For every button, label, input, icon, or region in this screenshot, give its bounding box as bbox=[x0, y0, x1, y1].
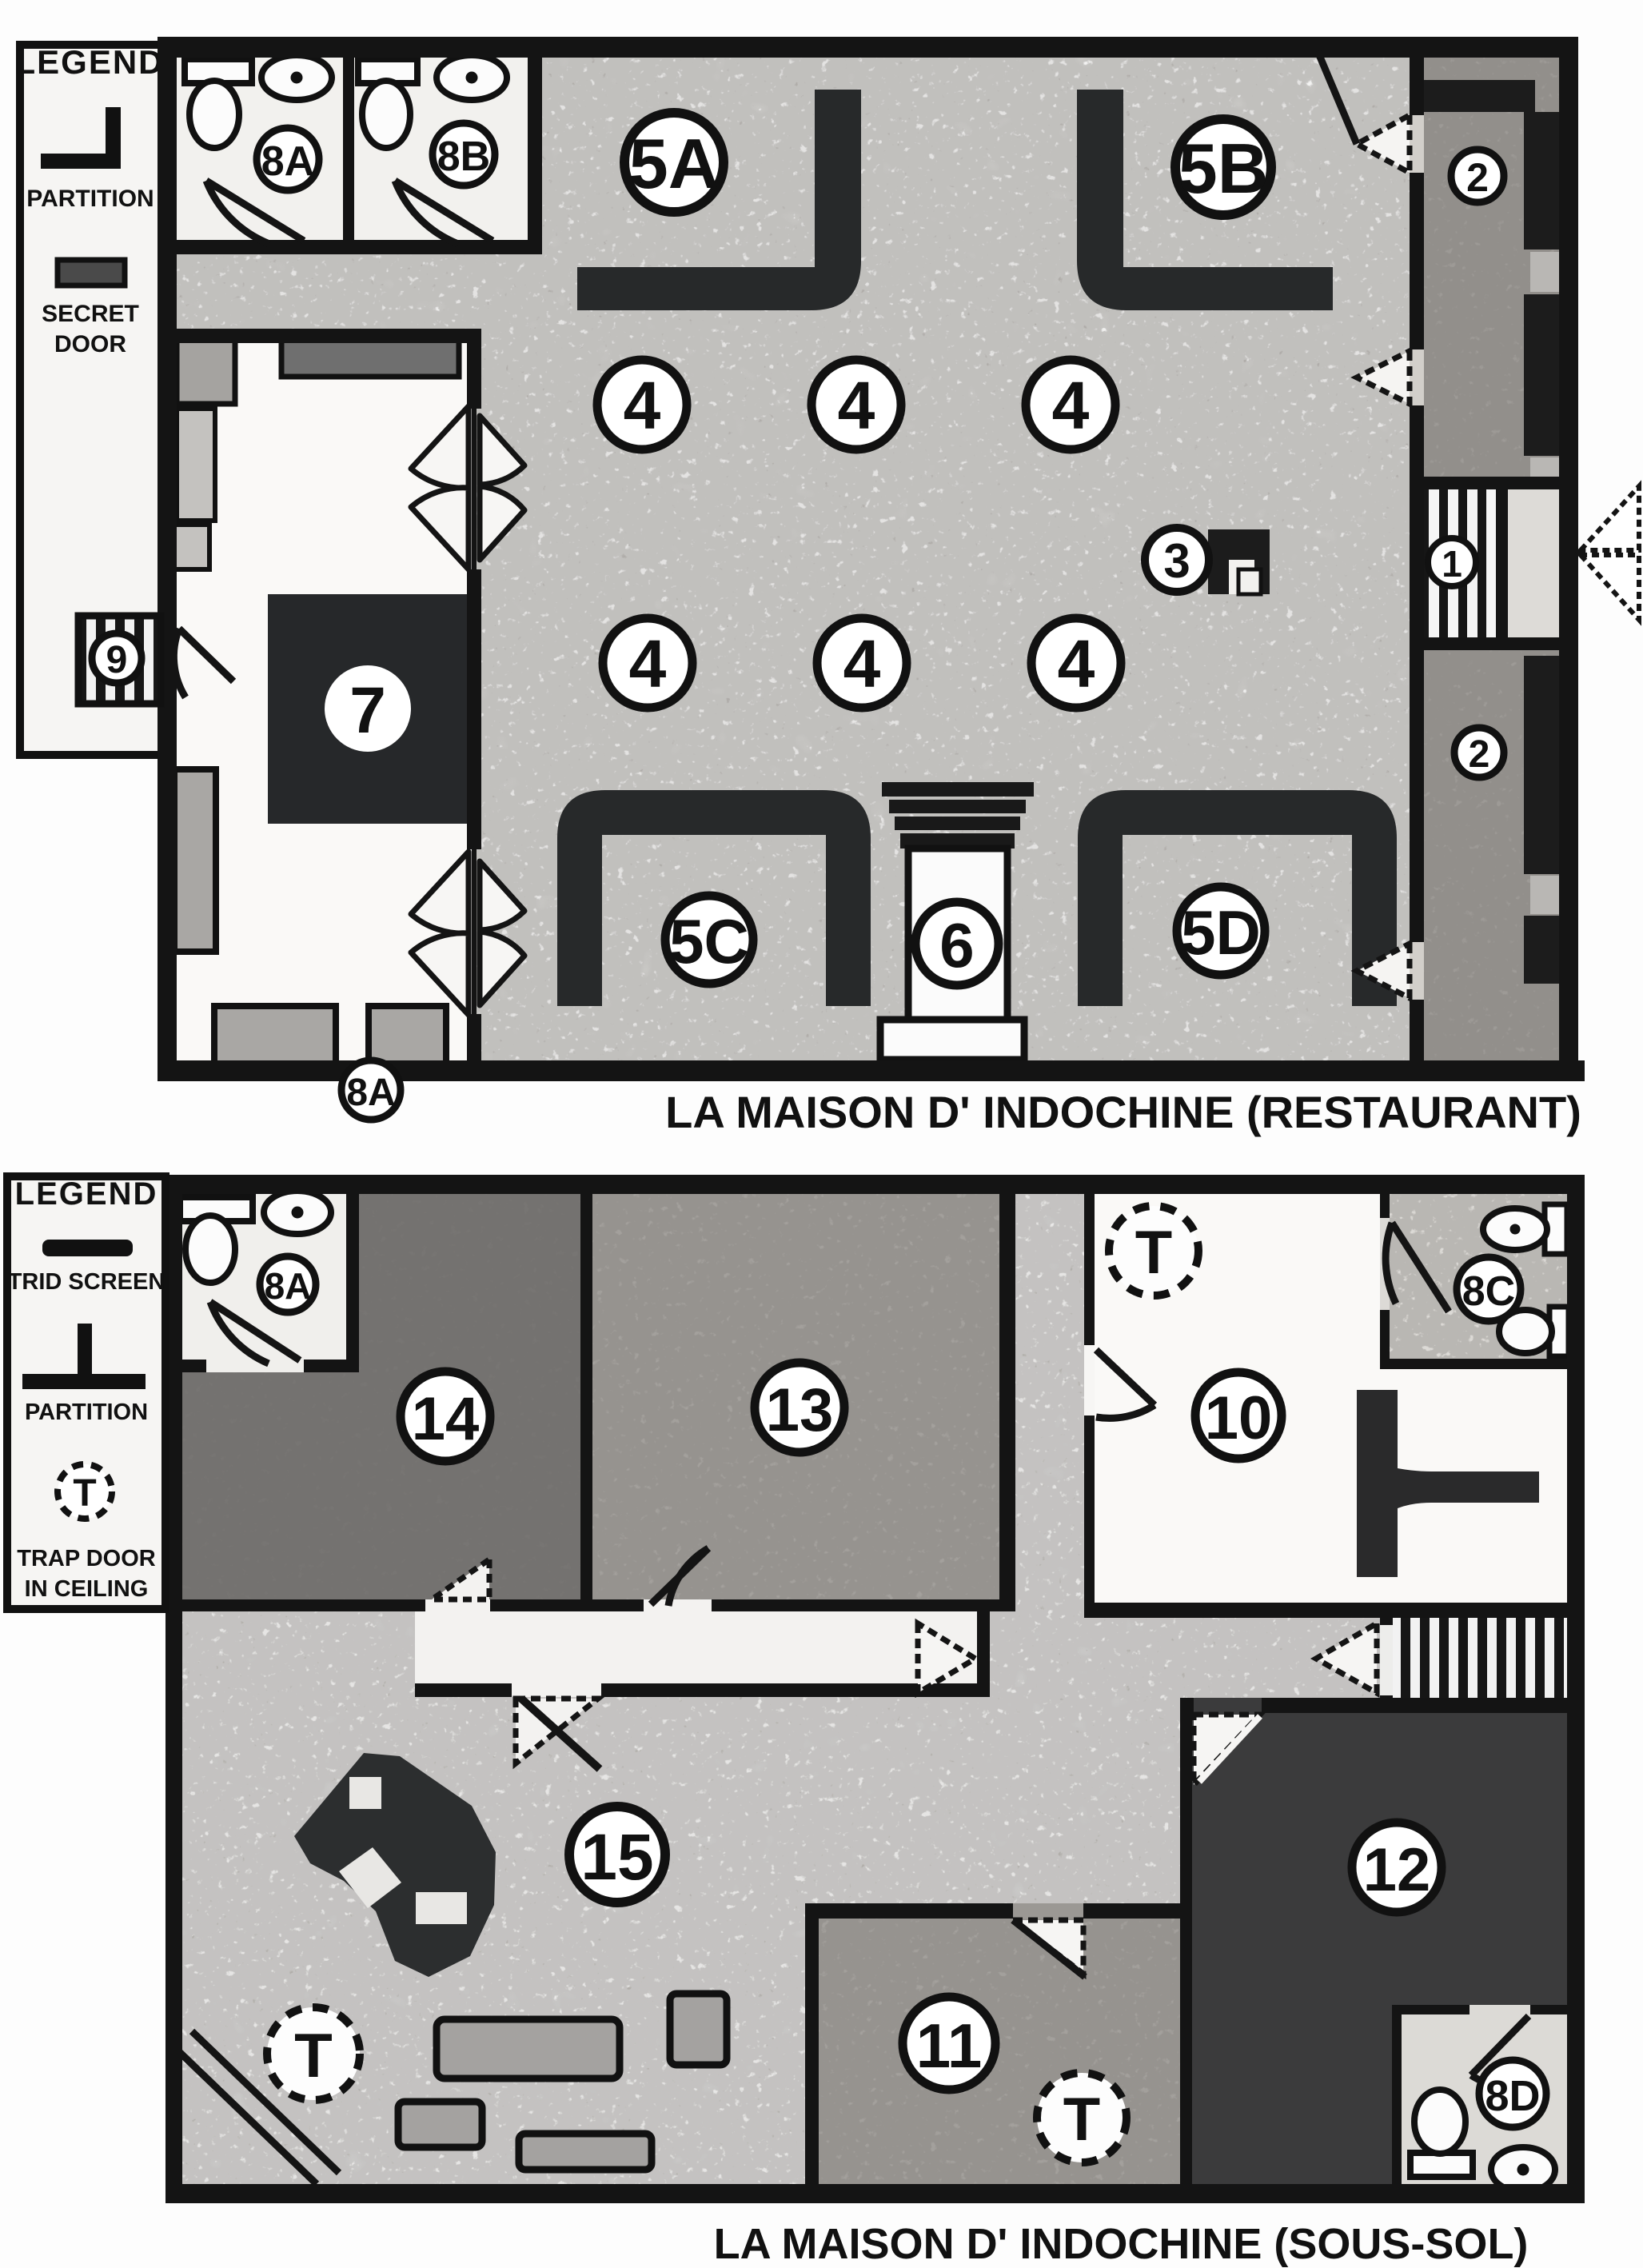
svg-text:7: 7 bbox=[349, 674, 386, 747]
svg-text:SECRET: SECRET bbox=[42, 301, 139, 327]
svg-text:13: 13 bbox=[766, 1376, 834, 1444]
svg-text:8A: 8A bbox=[265, 1265, 312, 1307]
svg-text:5B: 5B bbox=[1178, 129, 1269, 208]
svg-text:12: 12 bbox=[1363, 1836, 1431, 1904]
svg-text:1: 1 bbox=[1442, 543, 1462, 585]
svg-text:5D: 5D bbox=[1181, 897, 1261, 968]
svg-text:9: 9 bbox=[106, 639, 128, 681]
svg-text:PARTITION: PARTITION bbox=[25, 1400, 148, 1425]
svg-text:8A: 8A bbox=[346, 1072, 395, 1114]
svg-text:4: 4 bbox=[838, 368, 875, 443]
svg-text:15: 15 bbox=[580, 1821, 653, 1894]
svg-text:2: 2 bbox=[1469, 733, 1490, 776]
svg-text:6: 6 bbox=[939, 910, 974, 980]
svg-text:DOOR: DOOR bbox=[54, 331, 126, 357]
svg-text:11: 11 bbox=[916, 2010, 982, 2081]
svg-text:5A: 5A bbox=[629, 124, 720, 203]
svg-text:8B: 8B bbox=[437, 134, 490, 180]
svg-text:4: 4 bbox=[843, 626, 881, 701]
svg-text:10: 10 bbox=[1205, 1384, 1273, 1452]
svg-text:8C: 8C bbox=[1462, 1268, 1515, 1315]
svg-text:4: 4 bbox=[1058, 626, 1095, 701]
svg-text:4: 4 bbox=[1052, 368, 1090, 443]
svg-text:LEGEND: LEGEND bbox=[14, 43, 164, 81]
svg-text:TRID SCREEN: TRID SCREEN bbox=[8, 1269, 165, 1295]
svg-text:T: T bbox=[73, 1472, 96, 1515]
svg-text:2: 2 bbox=[1466, 155, 1489, 200]
svg-text:IN CEILING: IN CEILING bbox=[25, 1576, 149, 1602]
svg-text:T: T bbox=[294, 2020, 333, 2090]
svg-text:4: 4 bbox=[629, 626, 667, 701]
svg-text:PARTITION: PARTITION bbox=[26, 186, 154, 212]
svg-text:3: 3 bbox=[1163, 534, 1190, 588]
svg-text:LEGEND: LEGEND bbox=[15, 1176, 158, 1212]
svg-text:TRAP DOOR: TRAP DOOR bbox=[17, 1546, 156, 1571]
svg-text:LA MAISON D' INDOCHINE (RESTA: LA MAISON D' INDOCHINE (RESTAURANT) bbox=[665, 1087, 1581, 1137]
svg-text:14: 14 bbox=[412, 1385, 480, 1453]
svg-text:LA MAISON D' INDOCHINE (SOUS-S: LA MAISON D' INDOCHINE (SOUS-SOL) bbox=[714, 2220, 1529, 2268]
svg-text:8A: 8A bbox=[261, 138, 314, 185]
svg-text:4: 4 bbox=[624, 368, 661, 443]
svg-text:5C: 5C bbox=[669, 906, 749, 976]
svg-text:8D: 8D bbox=[1485, 2072, 1540, 2120]
svg-text:T: T bbox=[1135, 1219, 1172, 1287]
svg-text:T: T bbox=[1063, 2086, 1100, 2154]
